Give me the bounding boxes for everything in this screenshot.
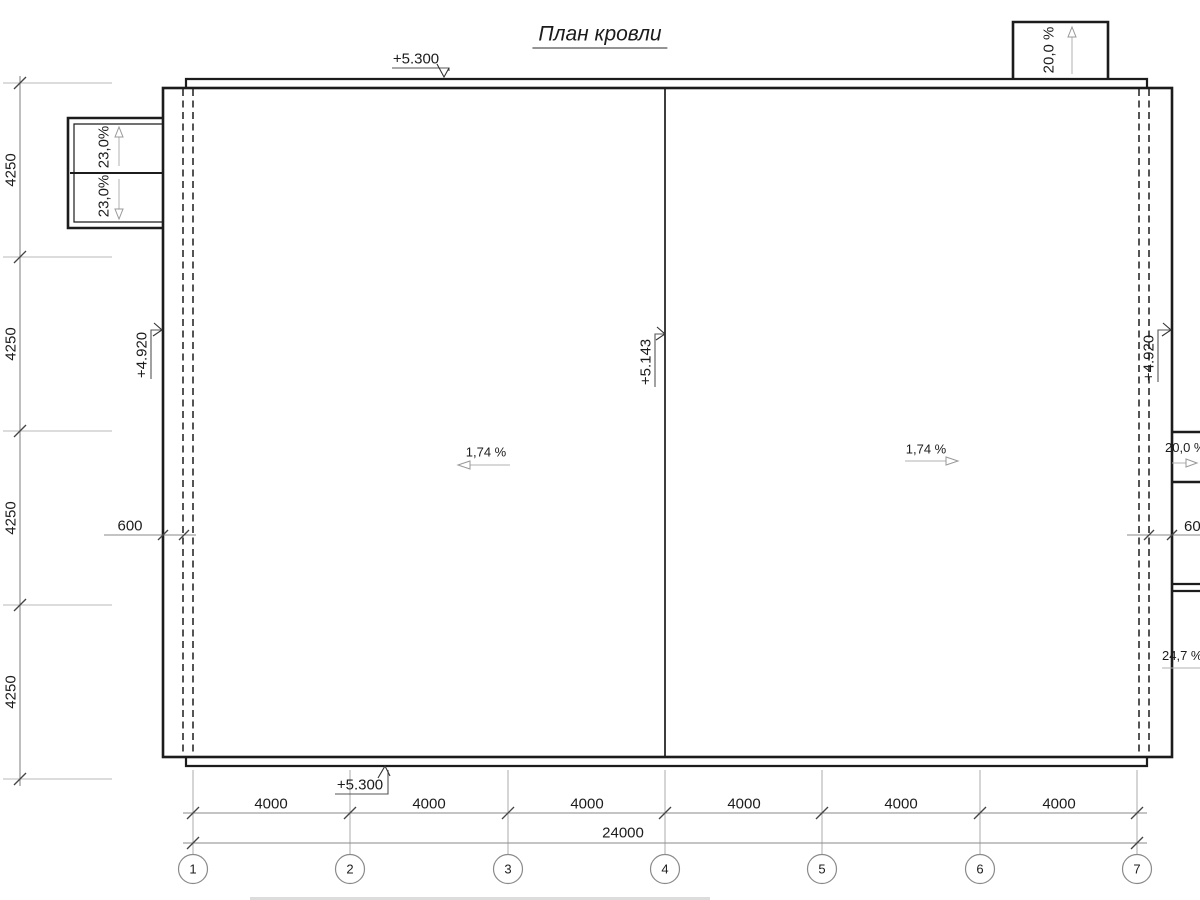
parapet-cap-top: [186, 79, 1147, 88]
overhang-dimensions: [104, 530, 1200, 540]
hidden-gutter-lines: [183, 89, 1149, 756]
elevation-bottom: +5.300: [337, 778, 383, 793]
grid-bubble-label-2: 2: [346, 863, 353, 876]
grid-bubble-label-4: 4: [661, 863, 668, 876]
roof-plan-drawing: План кровли +5.300 +5.300 +4.920 +5.143 …: [0, 0, 1200, 900]
elev-ridge-leader: [655, 334, 664, 387]
grid-bubble-label-1: 1: [189, 863, 196, 876]
dim-bay-5: 4000: [884, 797, 917, 812]
dim-row-4: 4250: [4, 675, 19, 708]
dim-bay-1: 4000: [254, 797, 287, 812]
dim-row-1: 4250: [4, 153, 19, 186]
top-canopy-slope: 20,0 %: [1042, 27, 1057, 74]
dim-row-2: 4250: [4, 327, 19, 360]
left-canopy-slope-upper: 23,0%: [97, 126, 112, 169]
slope-right-arrow-head: [946, 457, 958, 465]
left-canopy-arrow-down-head: [115, 209, 123, 219]
overhang-dim-right: 600: [1184, 519, 1200, 534]
parapet-cap-bottom: [186, 757, 1147, 766]
dim-bay-2: 4000: [412, 797, 445, 812]
top-canopy: [1013, 22, 1108, 80]
drawing-title: План кровли: [532, 24, 667, 49]
top-canopy-arrow-head: [1068, 27, 1076, 37]
dim-bay-4: 4000: [727, 797, 760, 812]
elevation-ridge: +5.143: [639, 339, 654, 385]
top-canopy-outline: [1013, 22, 1108, 80]
elev-right-leader: [1158, 330, 1170, 382]
left-canopy-slope-lower: 23,0%: [97, 175, 112, 218]
overhang-dim-left: 600: [117, 519, 142, 534]
elevation-gutter-right: +4.920: [1142, 335, 1157, 381]
dim-bay-6: 4000: [1042, 797, 1075, 812]
elevation-callouts: [151, 64, 1171, 794]
grid-bubble-label-5: 5: [818, 863, 825, 876]
plan-linework: [0, 0, 1200, 900]
dim-total: 24000: [602, 826, 644, 841]
right-canopy-arrow-head: [1186, 459, 1197, 467]
left-canopy: [68, 118, 163, 228]
elevation-gutter-left: +4.920: [135, 332, 150, 378]
elevation-top: +5.300: [393, 52, 439, 67]
right-canopy: [1162, 432, 1200, 668]
dim-bay-3: 4000: [570, 797, 603, 812]
left-canopy-arrow-up-head: [115, 127, 123, 137]
slope-label-right: 1,74 %: [906, 443, 946, 456]
slope-left-arrow-head: [458, 461, 470, 469]
dim-row-3: 4250: [4, 501, 19, 534]
right-canopy-slope-upper: 20,0 %: [1165, 441, 1200, 454]
building-outline: [163, 79, 1172, 766]
grid-bubble-label-7: 7: [1133, 863, 1140, 876]
roof-wall-rect: [163, 88, 1172, 757]
grid-bubble-label-6: 6: [976, 863, 983, 876]
main-slope-arrows: [458, 457, 958, 469]
slope-label-left: 1,74 %: [466, 446, 506, 459]
grid-bubble-label-3: 3: [504, 863, 511, 876]
elev-left-leader: [151, 330, 161, 379]
right-canopy-slope-lower: 24,7 %: [1162, 649, 1200, 662]
